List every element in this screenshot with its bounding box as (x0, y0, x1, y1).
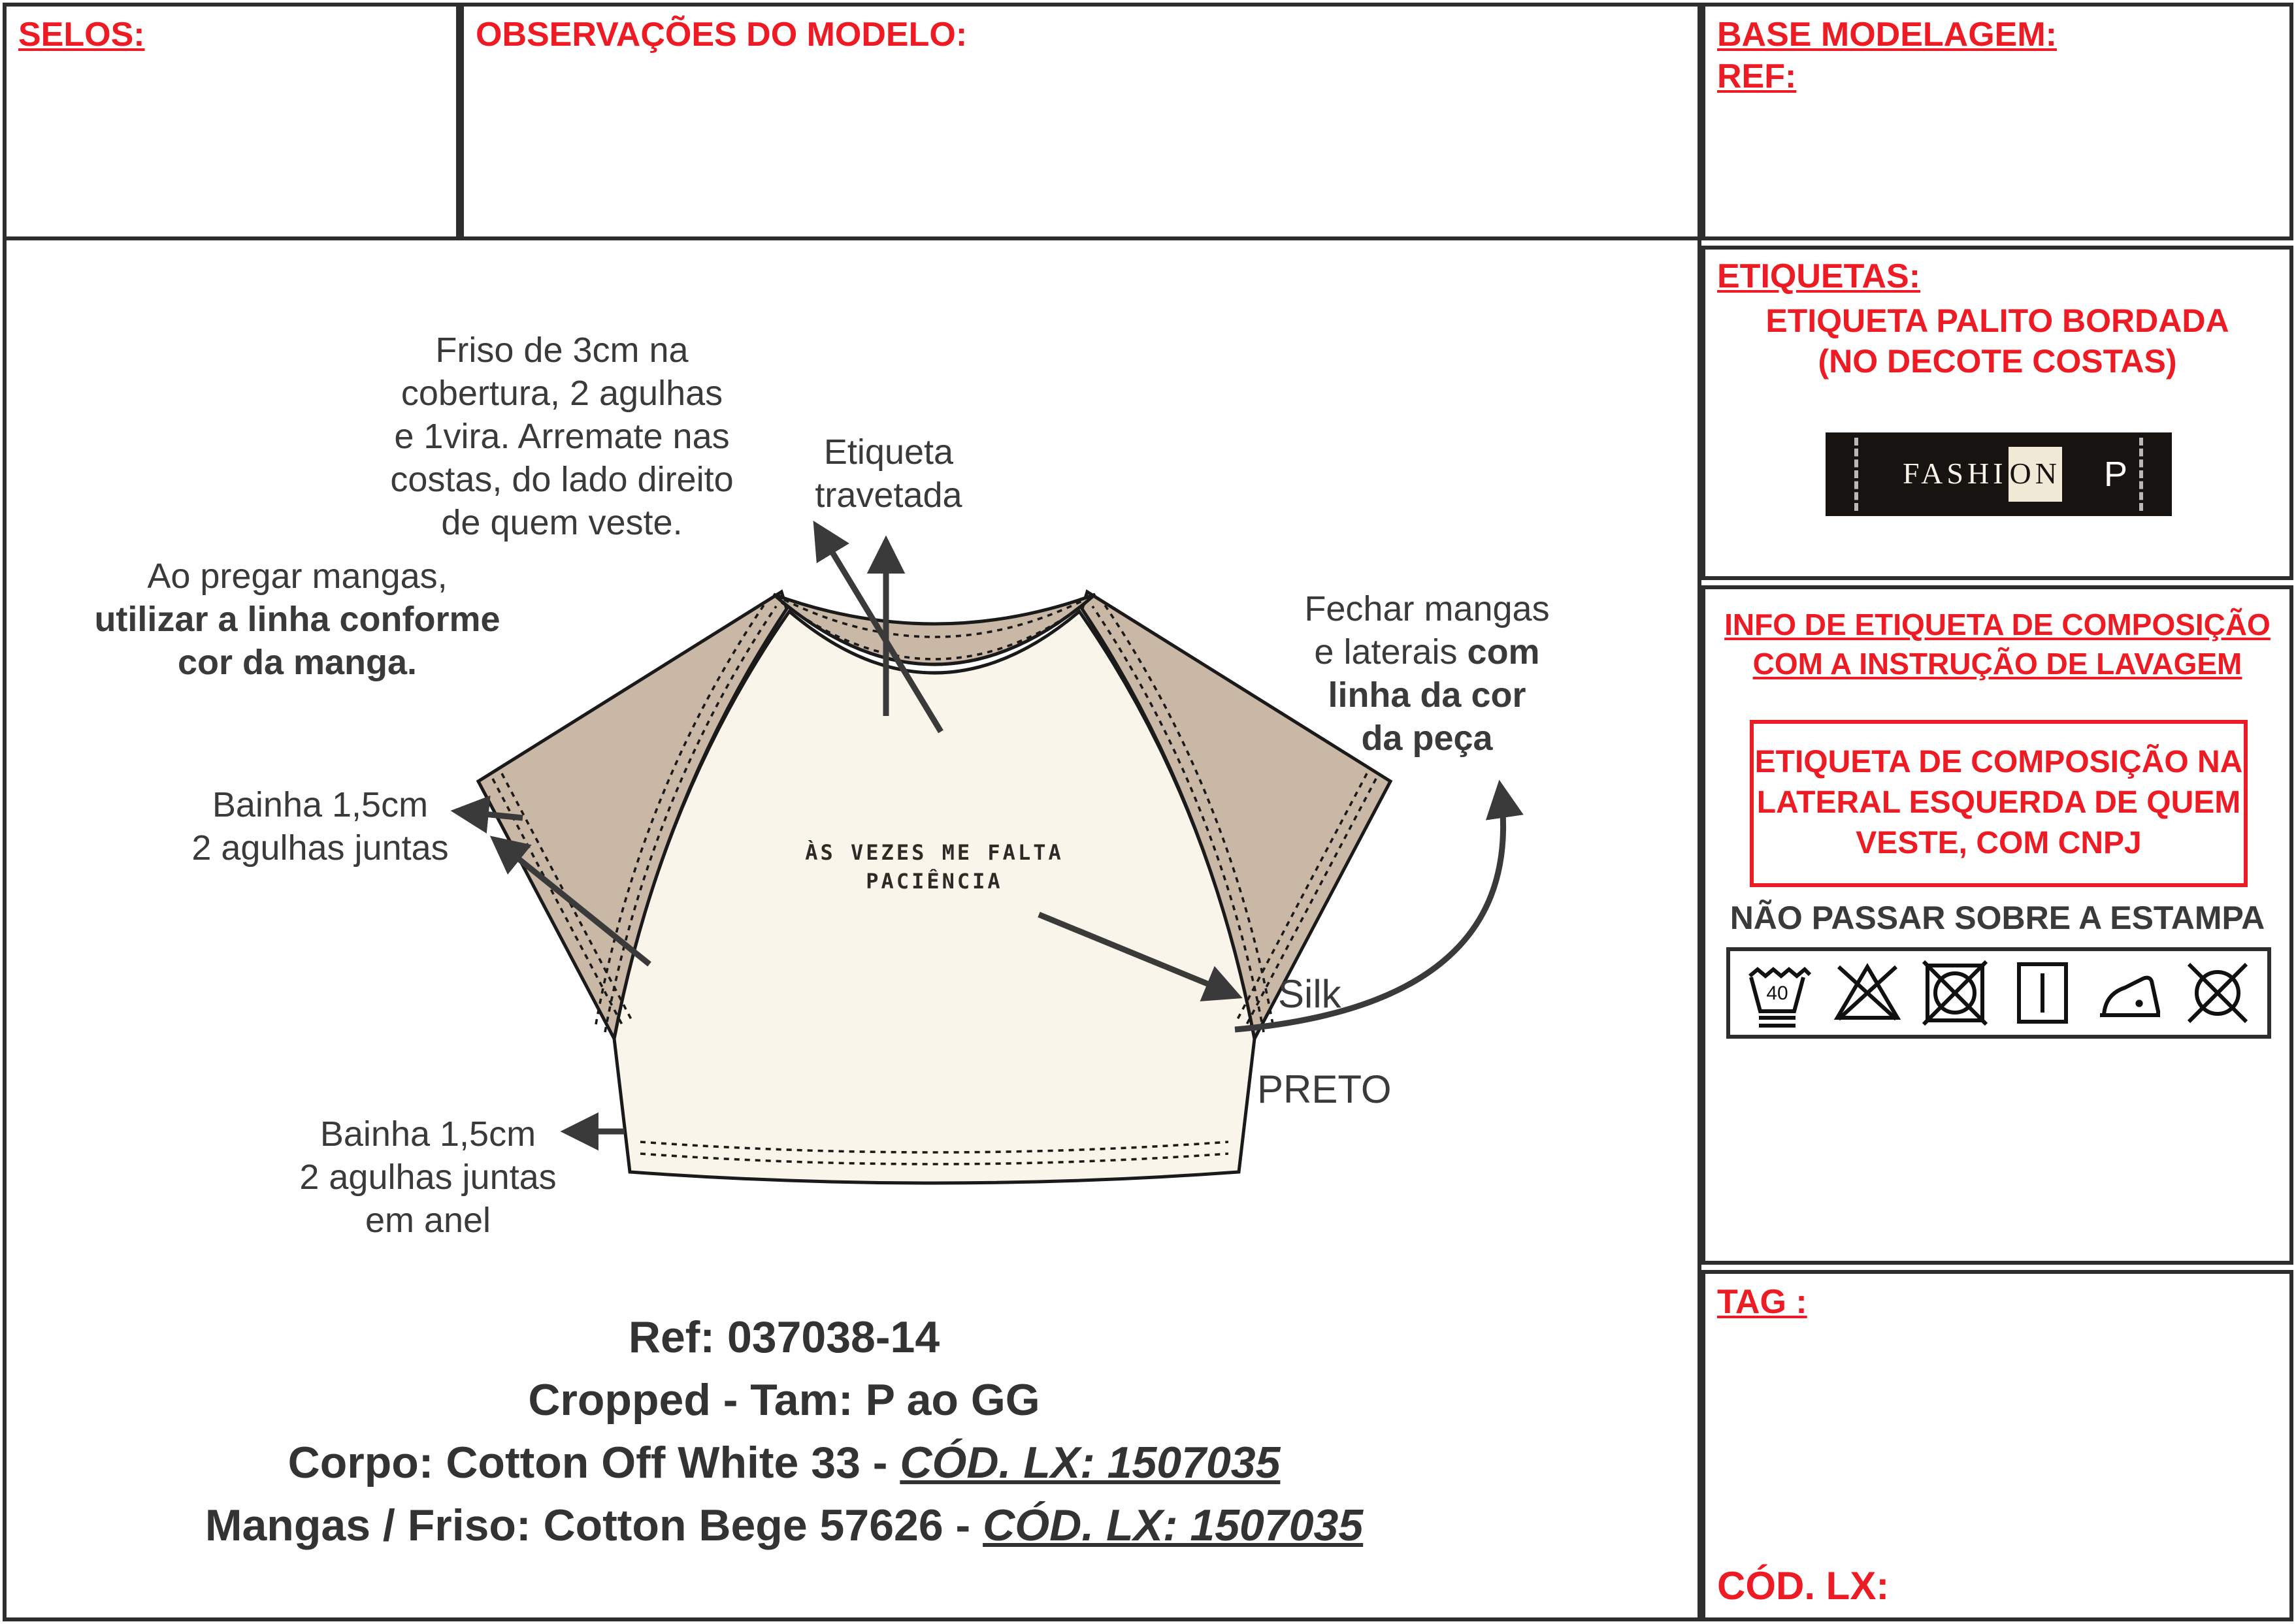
care-symbols-box: 40 (1726, 947, 2271, 1039)
footer-ref: Ref: 037038-14 (91, 1307, 1477, 1369)
observacoes-title: OBSERVAÇÕES DO MODELO: (464, 7, 1697, 61)
footer-ref-block: Ref: 037038-14 Cropped - Tam: P ao GG Co… (91, 1307, 1477, 1557)
cod-lx-label: CÓD. LX: (1717, 1565, 1889, 1610)
annotation-bainha-barra: Bainha 1,5cm 2 agulhas juntas em anel (281, 1113, 575, 1242)
do-not-tumble-dry-icon (1918, 956, 1992, 1030)
label-fold-line-right (2139, 438, 2143, 511)
ref-label: REF: (1705, 54, 2289, 103)
etiquetas-title: ETIQUETAS: (1717, 256, 1920, 295)
base-modelagem-title: BASE MODELAGEM: (1705, 7, 2289, 54)
info-composicao-title: INFO DE ETIQUETA DE COMPOSIÇÃO COM A INS… (1705, 605, 2289, 683)
annotation-fechar: Fechar mangas e laterais com linha da co… (1244, 588, 1610, 760)
tag-cell: TAG : CÓD. LX: (1701, 1270, 2293, 1621)
annotation-silk-color: PRETO (1257, 1069, 1466, 1112)
chest-print-line2: PACIÊNCIA (673, 868, 1196, 896)
chest-print: ÀS VEZES ME FALTA PACIÊNCIA (673, 839, 1196, 896)
annotation-friso: Friso de 3cm na cobertura, 2 agulhas e 1… (301, 329, 823, 545)
care-warning: NÃO PASSAR SOBRE A ESTAMPA (1705, 900, 2289, 938)
annotation-silk: Silk (1278, 973, 1435, 1016)
label-fold-line-left (1854, 438, 1858, 511)
info-composicao-cell: INFO DE ETIQUETA DE COMPOSIÇÃO COM A INS… (1701, 585, 2293, 1265)
woven-label-preview: FASHION P (1826, 432, 2172, 516)
tag-title: TAG : (1717, 1282, 1807, 1321)
tech-sheet-page: SELOS: OBSERVAÇÕES DO MODELO: BASE MODEL… (0, 0, 2296, 1624)
annotation-etiqueta-travetada: Etiqueta travetada (758, 431, 1019, 517)
observacoes-cell: OBSERVAÇÕES DO MODELO: (460, 3, 1701, 240)
iron-low-icon (2093, 956, 2167, 1030)
label-size-text: P (2104, 432, 2127, 516)
do-not-dry-clean-icon (2181, 956, 2254, 1030)
chest-print-line1: ÀS VEZES ME FALTA (673, 839, 1196, 868)
line-dry-icon (2006, 956, 2079, 1030)
selos-title: SELOS: (7, 7, 456, 61)
selos-cell: SELOS: (3, 3, 460, 240)
composicao-note-box: ETIQUETA DE COMPOSIÇÃO NA LATERAL ESQUER… (1750, 720, 2248, 887)
annotation-ao-pregar: Ao pregar mangas, utilizar a linha confo… (52, 555, 542, 685)
footer-sleeve-fabric: Mangas / Friso: Cotton Bege 57626 - CÓD.… (91, 1495, 1477, 1557)
annotation-bainha-manga: Bainha 1,5cm 2 agulhas juntas (157, 784, 484, 870)
do-not-bleach-icon (1831, 956, 1904, 1030)
base-modelagem-cell: BASE MODELAGEM: REF: (1701, 3, 2293, 240)
label-brand-text: FASHION (1904, 432, 2061, 516)
footer-size: Cropped - Tam: P ao GG (91, 1369, 1477, 1432)
svg-text:40: 40 (1766, 983, 1788, 1004)
etiquetas-cell: ETIQUETAS: ETIQUETA PALITO BORDADA (NO D… (1701, 246, 2293, 580)
etiquetas-subtitle: ETIQUETA PALITO BORDADA (NO DECOTE COSTA… (1705, 302, 2289, 383)
wash-40-gentle-icon: 40 (1743, 956, 1816, 1030)
footer-body-fabric: Corpo: Cotton Off White 33 - CÓD. LX: 15… (91, 1432, 1477, 1495)
